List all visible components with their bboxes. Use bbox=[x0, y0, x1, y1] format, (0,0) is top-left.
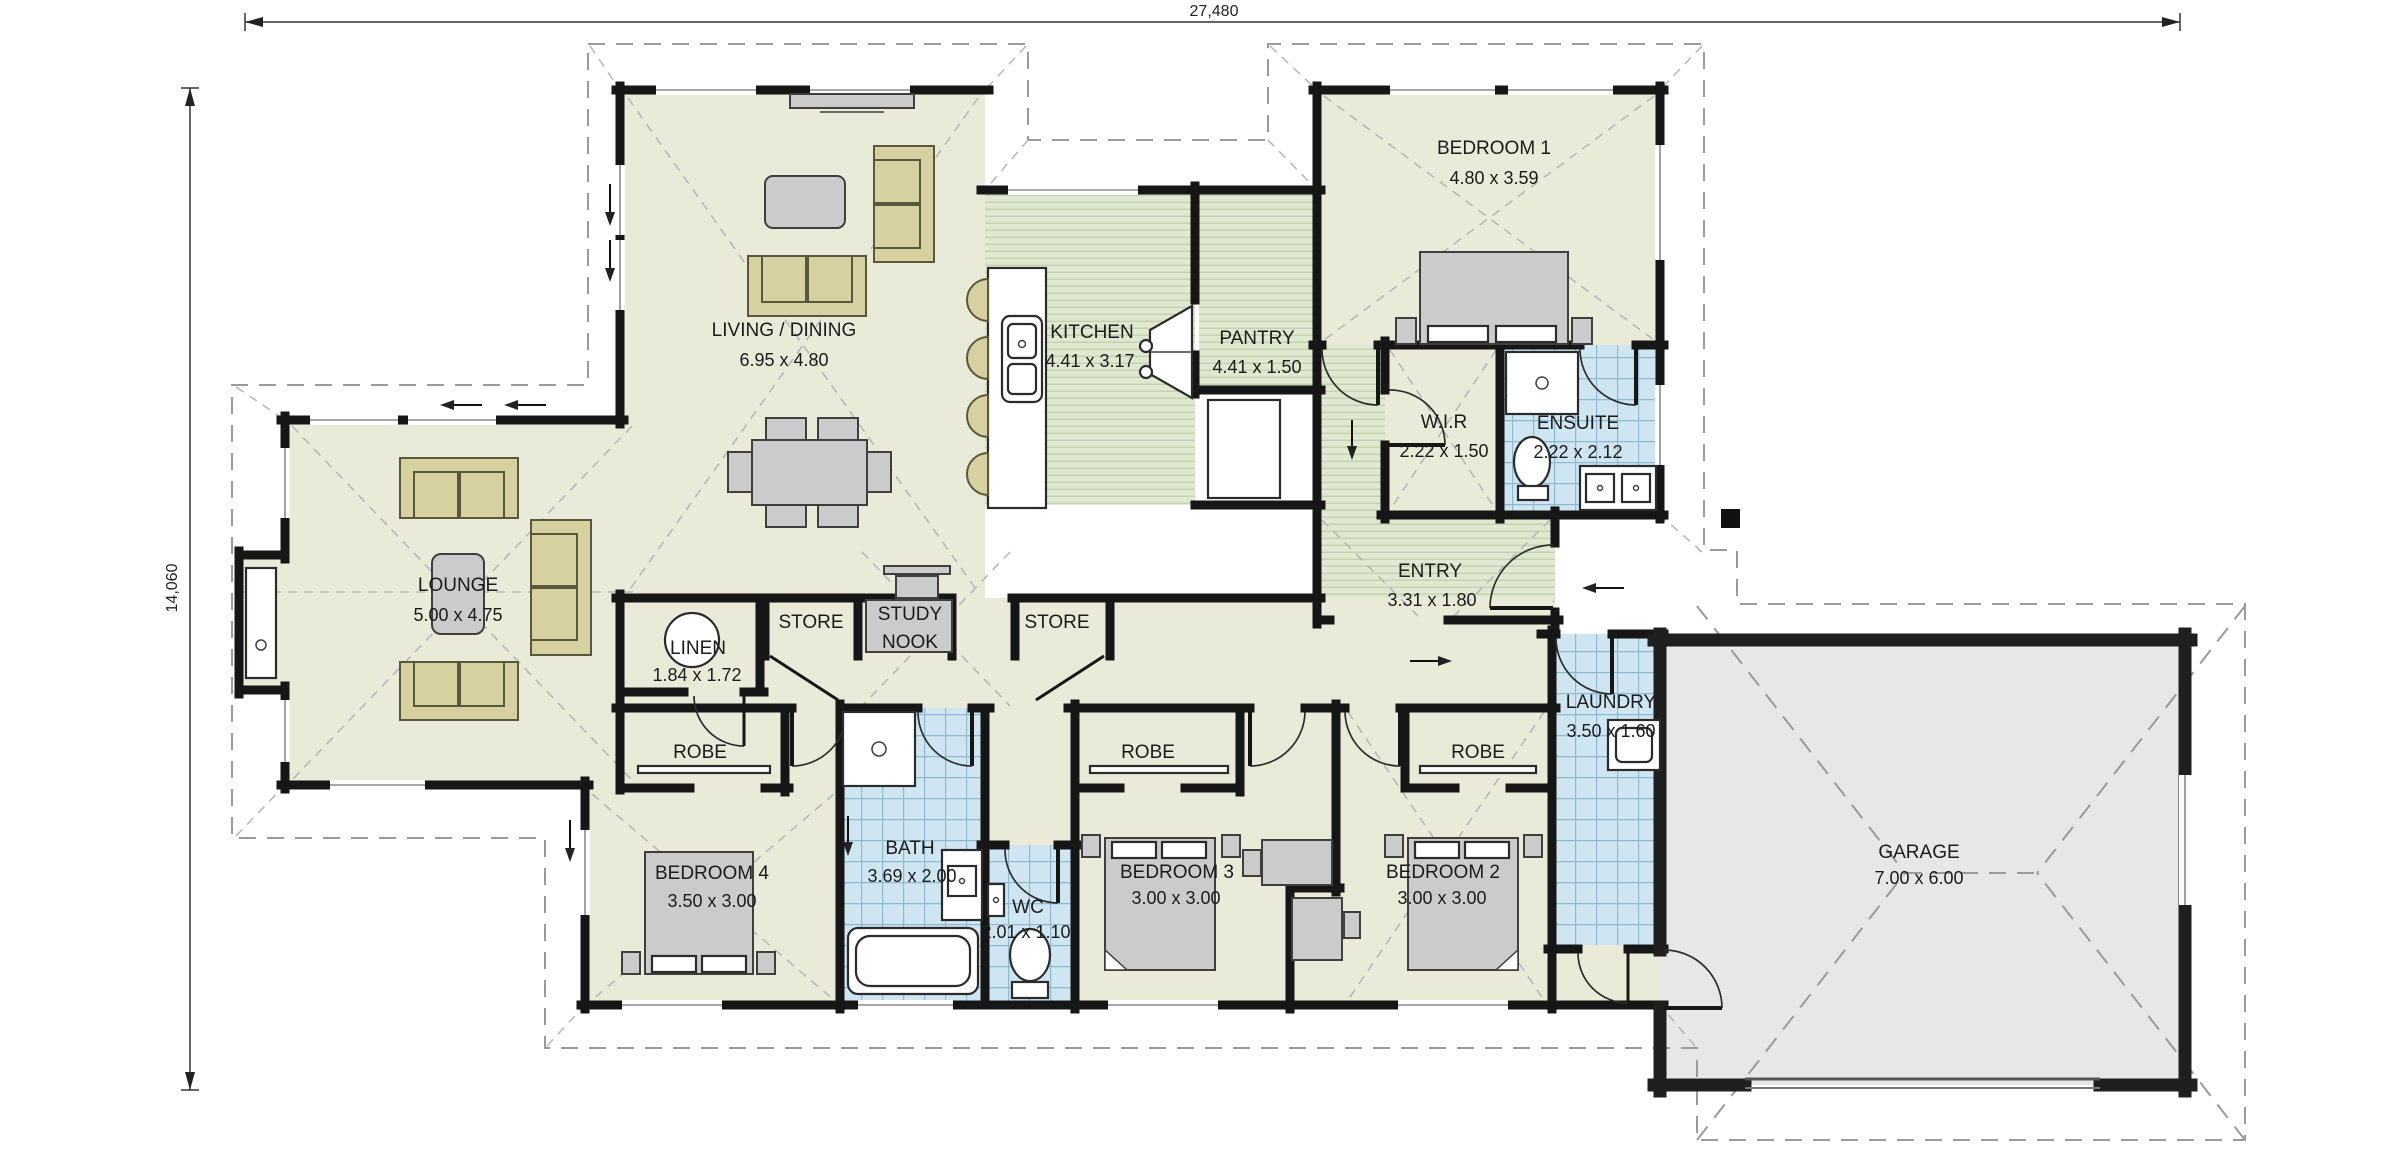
room-label-robe2: ROBE bbox=[1121, 742, 1175, 763]
window bbox=[1508, 85, 1613, 95]
bedside-table bbox=[622, 952, 640, 974]
room-label-bedroom3: BEDROOM 3 bbox=[1120, 862, 1234, 883]
porch-post bbox=[1721, 509, 1740, 528]
window bbox=[1108, 1000, 1218, 1010]
room-label-laundry: LAUNDRY bbox=[1566, 692, 1657, 713]
room-dims-lounge: 5.00 x 4.75 bbox=[413, 605, 502, 625]
fireplace bbox=[246, 568, 276, 678]
bath-shower bbox=[843, 712, 915, 786]
room-label-pantry: PANTRY bbox=[1219, 328, 1295, 349]
bedside-table bbox=[1385, 835, 1403, 857]
sofa-cushion bbox=[414, 472, 458, 518]
room-dims-garage: 7.00 x 6.00 bbox=[1874, 868, 1963, 888]
sofa-cushion bbox=[531, 534, 577, 586]
room-dims-kitchen: 4.41 x 3.17 bbox=[1045, 351, 1134, 371]
sink-bowl bbox=[1008, 364, 1036, 394]
room-dims-bedroom1: 4.80 x 3.59 bbox=[1449, 168, 1538, 188]
window bbox=[1398, 1000, 1508, 1010]
window bbox=[1655, 145, 1665, 260]
window bbox=[280, 700, 290, 762]
window bbox=[330, 780, 425, 790]
room-label-store2: STORE bbox=[1024, 612, 1089, 633]
pillow bbox=[652, 956, 696, 972]
laundry-floor bbox=[1552, 634, 1660, 945]
dining-chair bbox=[867, 452, 891, 492]
room-label-study-nook-2: NOOK bbox=[882, 632, 938, 653]
room-dims-linen: 1.84 x 1.72 bbox=[652, 665, 741, 685]
dining-chair bbox=[766, 505, 806, 527]
sofa-cushion bbox=[414, 662, 458, 706]
sofa-cushion bbox=[531, 588, 577, 640]
robe-rail bbox=[638, 766, 770, 773]
toilet-cistern bbox=[1518, 486, 1548, 500]
arrow-left-icon bbox=[504, 400, 546, 410]
room-label-bedroom2: BEDROOM 2 bbox=[1386, 862, 1500, 883]
sofa-cushion bbox=[460, 472, 504, 518]
shower bbox=[1506, 352, 1578, 414]
dimension-arrow bbox=[245, 17, 263, 27]
rear-lobby-floor bbox=[1552, 945, 1660, 1005]
pillow bbox=[1415, 842, 1459, 858]
cooktop-knob bbox=[1140, 366, 1152, 378]
window bbox=[280, 448, 290, 518]
fridge bbox=[1208, 400, 1280, 498]
pillow bbox=[1112, 842, 1156, 858]
room-dims-living: 6.95 x 4.80 bbox=[739, 350, 828, 370]
window bbox=[656, 85, 756, 95]
room-label-wc: WC bbox=[1012, 897, 1044, 918]
dining-chair bbox=[728, 452, 752, 492]
window bbox=[615, 240, 625, 310]
room-label-bath: BATH bbox=[885, 838, 934, 859]
room-label-robe1: ROBE bbox=[673, 742, 727, 763]
window bbox=[1390, 85, 1495, 95]
dining-chair bbox=[818, 418, 858, 440]
cooktop-knob bbox=[1140, 340, 1152, 352]
desk-chair bbox=[896, 576, 938, 598]
room-label-bedroom4: BEDROOM 4 bbox=[655, 863, 769, 884]
room-label-bedroom1: BEDROOM 1 bbox=[1437, 138, 1551, 159]
pillow bbox=[1162, 842, 1206, 858]
room-dims-bedroom4: 3.50 x 3.00 bbox=[667, 891, 756, 911]
pillow bbox=[1428, 326, 1488, 342]
desk bbox=[1292, 898, 1342, 960]
sofa-cushion bbox=[762, 256, 806, 302]
window bbox=[408, 415, 496, 425]
dimension-arrow bbox=[185, 1072, 195, 1090]
desk-chair bbox=[1344, 912, 1360, 938]
desk-chair bbox=[1243, 850, 1261, 876]
overall-height-dimension: 14,060 bbox=[164, 563, 181, 612]
room-label-garage: GARAGE bbox=[1878, 842, 1959, 863]
bedside-table bbox=[1082, 835, 1100, 857]
window bbox=[1008, 185, 1138, 195]
desk bbox=[1262, 840, 1332, 885]
room-dims-bedroom3: 3.00 x 3.00 bbox=[1131, 888, 1220, 908]
bedroom1-furniture bbox=[1396, 252, 1592, 344]
pillow bbox=[1496, 326, 1556, 342]
wc-basin bbox=[988, 884, 1004, 916]
arrow-down-icon bbox=[605, 184, 615, 226]
arrow-left-icon bbox=[440, 400, 482, 410]
window bbox=[2179, 775, 2192, 905]
arrow-down-icon bbox=[565, 820, 575, 862]
arrow-down-icon bbox=[605, 240, 615, 282]
room-label-entry: ENTRY bbox=[1398, 561, 1462, 582]
room-dims-entry: 3.31 x 1.80 bbox=[1387, 590, 1476, 610]
room-label-kitchen: KITCHEN bbox=[1050, 322, 1133, 343]
room-dims-bath: 3.69 x 2.00 bbox=[867, 866, 956, 886]
sofa-cushion bbox=[874, 160, 920, 203]
room-label-lounge: LOUNGE bbox=[418, 575, 498, 596]
bedside-table bbox=[757, 952, 775, 974]
bathtub-inner bbox=[856, 936, 970, 986]
tv-unit bbox=[790, 94, 914, 108]
sofa-cushion bbox=[460, 662, 504, 706]
room-dims-pantry: 4.41 x 1.50 bbox=[1212, 357, 1301, 377]
dining-chair bbox=[818, 505, 858, 527]
window bbox=[622, 1000, 722, 1010]
room-dims-laundry: 3.50 x 1.60 bbox=[1566, 721, 1655, 741]
bedside-table bbox=[1572, 318, 1592, 344]
bedside-table bbox=[1524, 835, 1542, 857]
room-label-linen: LINEN bbox=[670, 638, 726, 659]
sofa-cushion bbox=[808, 256, 852, 302]
window bbox=[858, 1000, 953, 1010]
robe-rail bbox=[1090, 766, 1228, 773]
window bbox=[615, 165, 625, 235]
bedside-table bbox=[1222, 835, 1240, 857]
room-dims-ensuite: 2.22 x 2.12 bbox=[1533, 442, 1622, 462]
dining-table bbox=[752, 440, 867, 505]
dimension-arrow bbox=[2162, 17, 2180, 27]
dimension-arrow bbox=[185, 88, 195, 106]
room-label-wir: W.I.R bbox=[1421, 412, 1467, 433]
room-dims-bedroom2: 3.00 x 3.00 bbox=[1397, 888, 1486, 908]
room-dims-wc: 2.01 x 1.10 bbox=[981, 922, 1070, 942]
room-label-study-nook-1: STUDY bbox=[878, 604, 943, 625]
robe-rail bbox=[1420, 766, 1536, 773]
window bbox=[310, 415, 398, 425]
basin bbox=[1622, 474, 1650, 502]
coffee-table bbox=[765, 176, 845, 228]
dining-chair bbox=[766, 418, 806, 440]
pillow bbox=[1465, 842, 1509, 858]
desk-shelf bbox=[884, 566, 950, 574]
toilet-cistern bbox=[1012, 982, 1048, 998]
room-label-robe3: ROBE bbox=[1451, 742, 1505, 763]
basin bbox=[1586, 474, 1614, 502]
room-label-store1: STORE bbox=[778, 612, 843, 633]
floor-plan-drawing: 27,480 14,060 LIVING / DINING 6.95 x 4.8… bbox=[0, 0, 2400, 1164]
room-label-ensuite: ENSUITE bbox=[1537, 413, 1619, 434]
room-dims-wir: 2.22 x 1.50 bbox=[1399, 441, 1488, 461]
overall-width-dimension: 27,480 bbox=[1190, 3, 1239, 20]
bedside-table bbox=[1396, 318, 1416, 344]
window bbox=[1655, 385, 1665, 465]
pillow bbox=[702, 956, 746, 972]
sofa-cushion bbox=[874, 205, 920, 248]
window bbox=[580, 830, 590, 915]
room-label-living: LIVING / DINING bbox=[712, 320, 857, 341]
arrow-left-icon bbox=[1582, 583, 1624, 593]
